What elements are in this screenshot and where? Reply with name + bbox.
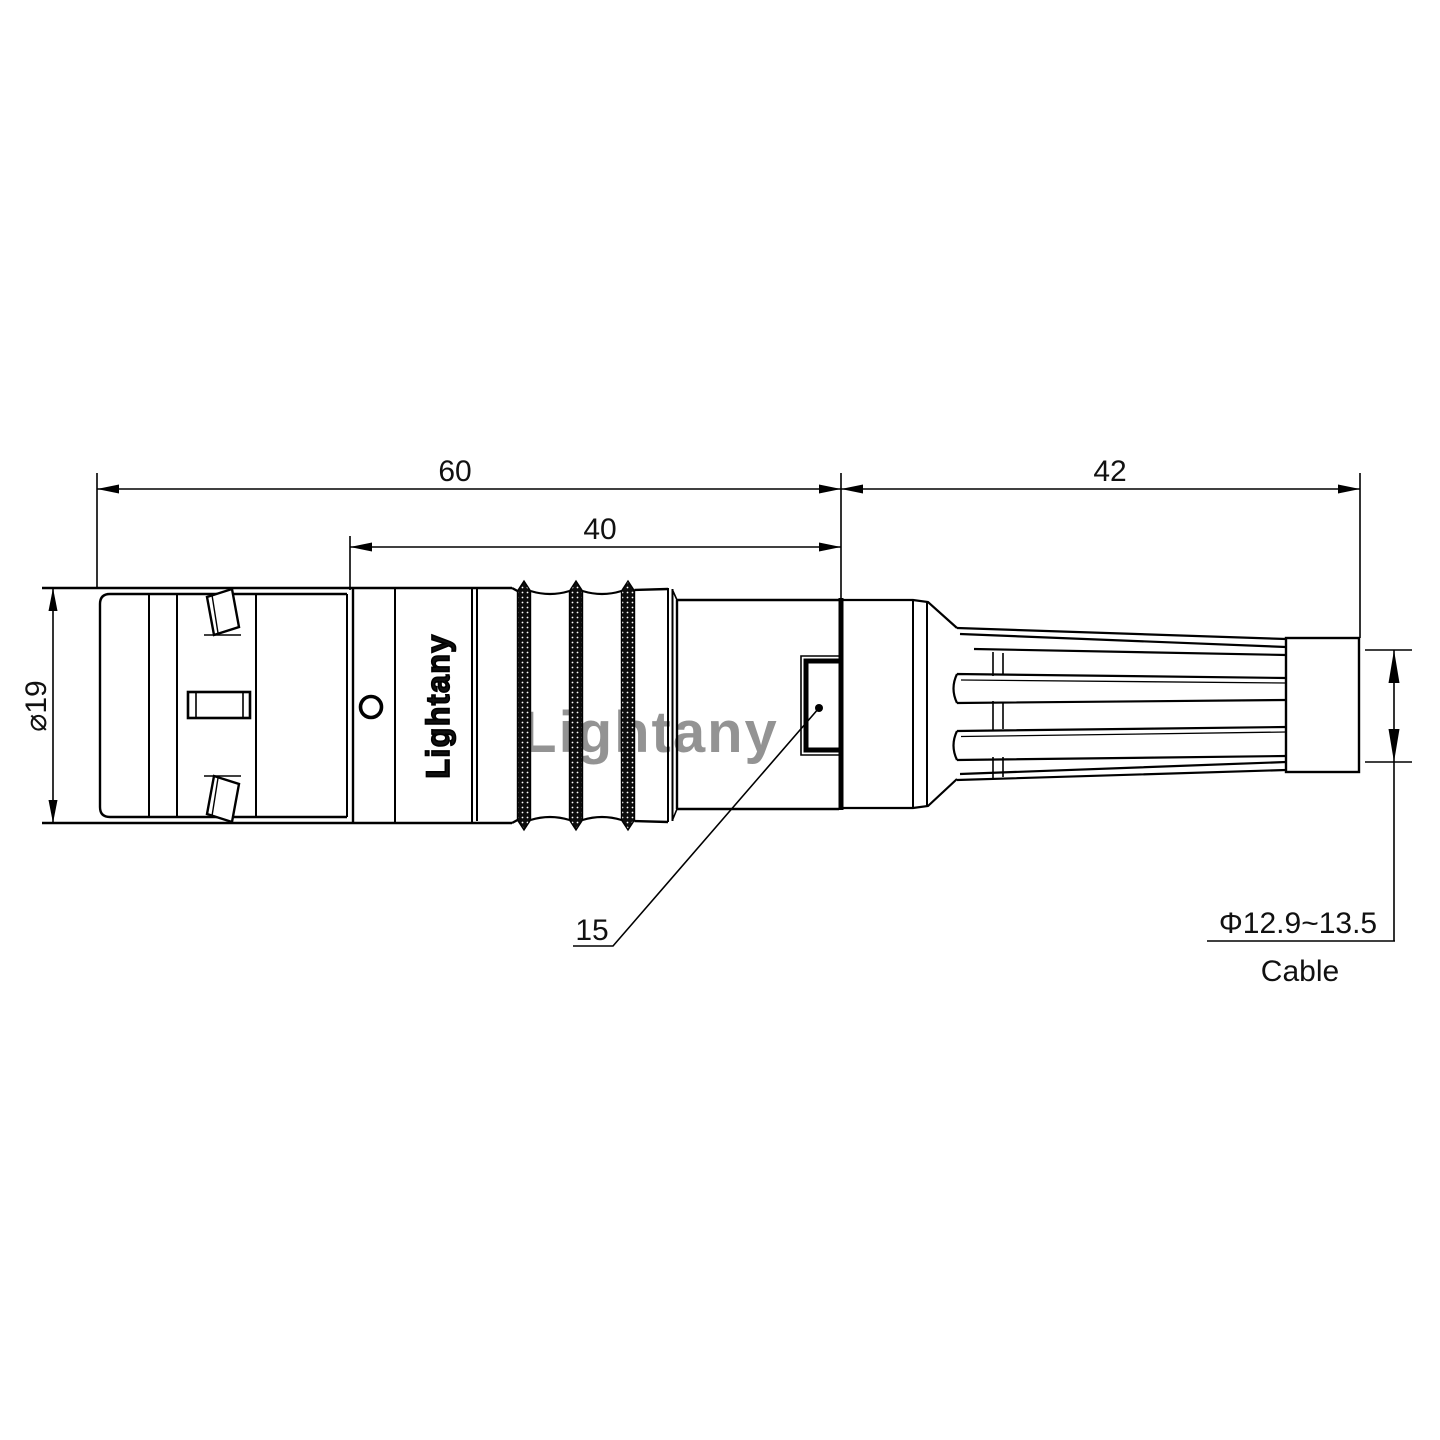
cable-end-cap [1286, 638, 1359, 772]
connector-front-section [100, 589, 347, 822]
cable-caption: Cable [1261, 955, 1339, 988]
watermark-text: Lightany [521, 700, 779, 765]
dimension-42-label: 42 [1093, 455, 1126, 488]
dimension-60: 60 [97, 455, 841, 598]
knurl-band [622, 581, 635, 830]
dimension-60-label: 60 [438, 455, 471, 488]
technical-drawing-page: Lightany [0, 0, 1440, 1440]
key-slot-block [188, 692, 250, 718]
connector-mid-section: Lightany [42, 581, 673, 830]
dimension-diameter-19-label: ⌀19 [20, 680, 53, 731]
leader-15-label: 15 [575, 914, 608, 947]
shell-marking-text: Lightany [420, 633, 456, 778]
knurl-band [570, 581, 583, 830]
knurl-band [518, 581, 531, 830]
dimension-diameter-19: ⌀19 [20, 588, 100, 823]
shell-hole [361, 697, 382, 718]
strain-relief-boot [843, 600, 1359, 808]
dimension-40: 40 [350, 513, 841, 590]
connector-technical-drawing: Lightany [0, 0, 1440, 1440]
dimension-42: 42 [841, 455, 1360, 638]
cable-diameter-label: Φ12.9~13.5 [1219, 907, 1377, 940]
dimension-40-label: 40 [583, 513, 616, 546]
latch [806, 661, 841, 750]
